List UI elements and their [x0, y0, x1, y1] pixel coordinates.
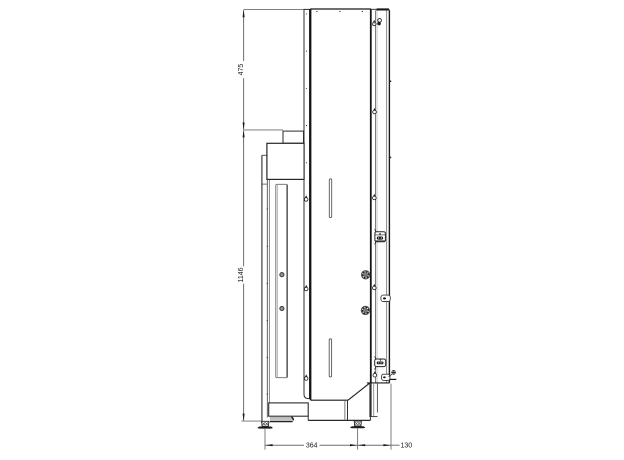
svg-text:1146: 1146 — [238, 267, 245, 282]
svg-text:130: 130 — [401, 443, 413, 450]
svg-text:475: 475 — [238, 64, 245, 76]
svg-text:364: 364 — [306, 443, 318, 450]
